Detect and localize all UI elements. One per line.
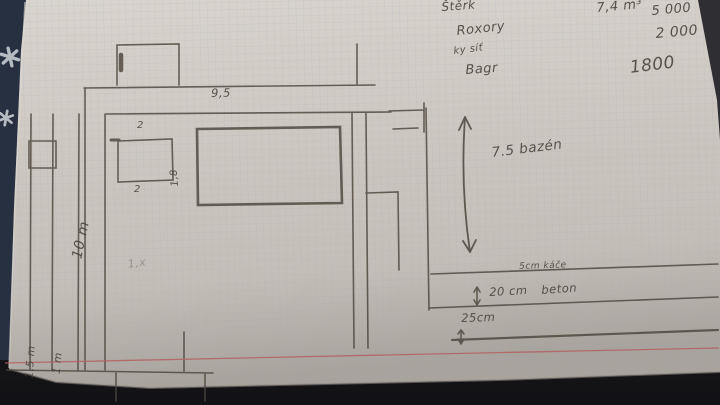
sketch-canvas — [0, 0, 720, 405]
left-column-line-2 — [52, 114, 53, 370]
grid-overlay — [9, 0, 720, 388]
left-column-line-1 — [30, 114, 31, 370]
photo-of-construction-sketch: Štěrk 7,4 m³ 5 000 Roxory 2 000 ky síť B… — [0, 0, 720, 405]
left-column-line-3 — [78, 114, 79, 370]
